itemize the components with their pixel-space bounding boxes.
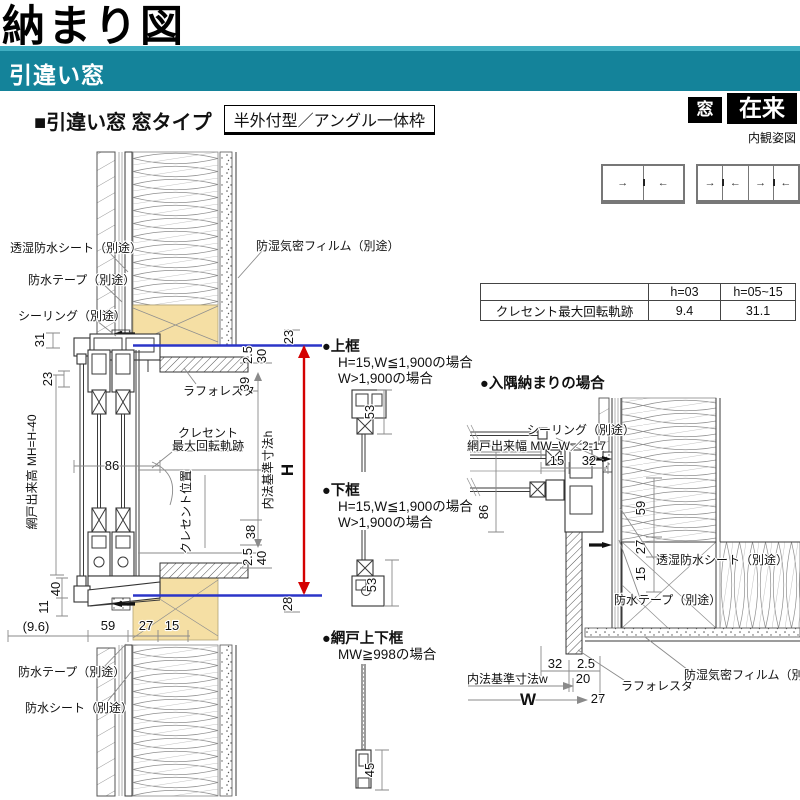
dim-31: 31	[32, 333, 47, 347]
detail-top-dim: 53	[362, 405, 377, 419]
dim-27: 27	[139, 618, 153, 633]
corner-label-tape: 防水テープ（別途）	[614, 592, 721, 607]
detail-top-title: ●上框	[322, 337, 360, 355]
section-row: ■引違い窓 窓タイプ 半外付型／アングル一体枠	[34, 105, 435, 135]
detail-scr-line1: MW≧998の場合	[338, 647, 437, 662]
label-tape-top: 防水テープ（別途）	[28, 272, 135, 287]
corner-section: ●入隅納まりの場合	[467, 374, 800, 709]
dim-11: 11	[36, 600, 51, 614]
dim-39: 39	[237, 377, 252, 391]
label-crescent-1: クレセント	[178, 426, 238, 440]
detail-bottom-rail: ●下框 H=15,W≦1,900の場合 W>1,900の場合 53	[322, 481, 473, 606]
detail-btm-title: ●下框	[322, 481, 360, 499]
label-moisture-sheet-top: 透湿防水シート（別途）	[10, 240, 142, 255]
detail-top-line2: W>1,900の場合	[338, 371, 433, 386]
corner-label-laforesta: ラフォレスタ	[621, 679, 693, 693]
corner-dim-15-top: 15	[550, 453, 564, 468]
label-sealing: シーリング（別途）	[18, 308, 126, 323]
label-film: 防湿気密フィルム（別途）	[256, 238, 400, 253]
detail-btm-line2: W>1,900の場合	[338, 515, 433, 530]
dim-38: 38	[243, 525, 258, 539]
dim-23-side: 23	[40, 372, 55, 386]
detail-scr-dim: 45	[362, 763, 377, 777]
detail-btm-dim: 53	[364, 578, 379, 592]
detail-btm-line1: H=15,W≦1,900の場合	[338, 499, 473, 514]
corner-dim-59: 59	[633, 501, 648, 515]
dim-59: 59	[101, 618, 115, 633]
dim-40-right: 40	[254, 551, 269, 565]
detail-top-rail: ●上框 H=15,W≦1,900の場合 W>1,900の場合 53	[322, 337, 473, 472]
corner-label-inner-w: 内法基準寸法w	[467, 671, 548, 686]
dim-23-top: 23	[281, 330, 296, 344]
label-H: H	[278, 464, 297, 476]
dim-28: 28	[280, 597, 295, 611]
corner-label-sealing: シーリング（別途）	[527, 422, 635, 437]
nakamari-zu-page: { "header": { "title": "納まり図", "band_lab…	[0, 0, 800, 800]
dim-15: 15	[165, 618, 179, 633]
frame-type-tag: 半外付型／アングル一体枠	[224, 105, 435, 135]
corner-label-sheet: 透湿防水シート（別途）	[656, 552, 788, 567]
corner-label-screen-width: 網戸出来幅 MW=W／2-17	[467, 438, 606, 453]
band-label: 引違い窓	[0, 46, 800, 90]
window-badge: 窓	[688, 97, 722, 123]
teal-band: 引違い窓	[0, 46, 800, 91]
corner-dim-2-5: 2.5	[577, 656, 595, 671]
dim-9-6: (9.6)	[23, 619, 50, 634]
label-screen-height: 網戸出来高 MH=H-40	[24, 414, 39, 529]
label-crescent-position: クレセント位置	[178, 470, 193, 554]
detail-scr-title: ●網戸上下框	[322, 629, 404, 647]
dim-86: 86	[105, 458, 119, 473]
detail-screen-rail: ●網戸上下框 MW≧998の場合 45	[322, 629, 437, 790]
dim-2-5-top: 2.5	[240, 346, 255, 364]
dim-30: 30	[254, 349, 269, 363]
label-inner-dim-h: 内法基準寸法h	[260, 431, 275, 510]
label-tape-bottom: 防水テープ（別途）	[18, 664, 125, 679]
corner-label-film: 防湿気密フィルム（別途）	[684, 667, 800, 682]
corner-dim-86: 86	[476, 505, 491, 519]
corner-dim-32-btm: 32	[548, 656, 562, 671]
label-crescent-2: 最大回転軌跡	[172, 438, 244, 453]
detail-drawing: 透湿防水シート（別途） 防水テープ（別途） シーリング（別途） 防湿気密フィルム…	[0, 140, 800, 800]
dim-40-left: 40	[48, 582, 63, 596]
dim-2-5-btm: 2.5	[240, 548, 255, 566]
corner-label-W: W	[520, 690, 537, 709]
corner-dim-27-btm: 27	[591, 691, 605, 706]
corner-dim-15-mid: 15	[633, 567, 648, 581]
zairai-badge: 在来	[727, 93, 797, 124]
corner-dim-20: 20	[576, 671, 590, 686]
label-sheet-bottom: 防水シート（別途）	[25, 700, 133, 715]
section-heading: ■引違い窓 窓タイプ	[34, 106, 212, 135]
detail-top-line1: H=15,W≦1,900の場合	[338, 355, 473, 370]
corner-title: ●入隅納まりの場合	[480, 374, 605, 392]
